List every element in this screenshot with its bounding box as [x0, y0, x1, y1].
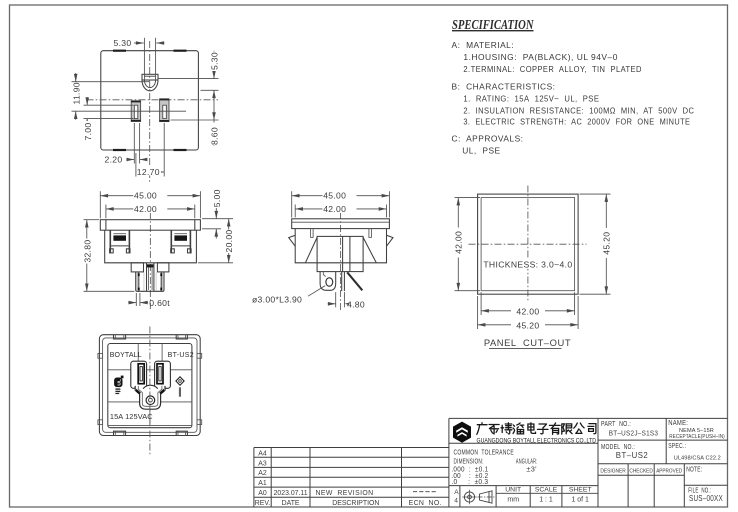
svg-text:DESCRIPTION: DESCRIPTION	[332, 500, 379, 507]
svg-text:2. INSULATION RESISTANCE: 1: 2. INSULATION RESISTANCE: 100MΩ MIN, AT …	[463, 106, 694, 116]
svg-text:2023.07.11: 2023.07.11	[274, 490, 308, 497]
svg-text:2.TERMINAL: COPPER ALLOY, T: 2.TERMINAL: COPPER ALLOY, TIN PLATED	[463, 64, 642, 74]
svg-text:CHECKED: CHECKED	[629, 468, 653, 474]
svg-text:DESIGNER: DESIGNER	[600, 468, 626, 474]
svg-text:7.00: 7.00	[83, 123, 93, 141]
svg-text:11.90: 11.90	[72, 82, 82, 104]
svg-text:BT–US2J–S1S3: BT–US2J–S1S3	[609, 428, 659, 437]
svg-text:THICKNESS: 3.0~4.0: THICKNESS: 3.0~4.0	[483, 259, 572, 269]
svg-text:MODEL NO.:: MODEL NO.:	[601, 444, 635, 451]
svg-text:C: APPROVALS:: C: APPROVALS:	[452, 134, 524, 144]
svg-text:A1: A1	[258, 480, 267, 487]
svg-text:32.80: 32.80	[82, 240, 92, 263]
svg-text:42.00: 42.00	[516, 306, 539, 316]
svg-text:4: 4	[454, 498, 458, 505]
svg-text:A4: A4	[258, 450, 267, 457]
svg-text:NEW REVISION: NEW REVISION	[316, 490, 374, 497]
svg-text:NEMA 5–15R: NEMA 5–15R	[679, 428, 714, 434]
svg-text:PART NO.:: PART NO.:	[601, 421, 631, 428]
svg-text:1 of 1: 1 of 1	[571, 496, 589, 503]
svg-text:UL: UL	[116, 379, 122, 386]
svg-text:GUANGDONG BOYTALL ELECTRONICS: GUANGDONG BOYTALL ELECTRONICS CO.,LTD	[477, 437, 597, 444]
svg-text:45.00: 45.00	[323, 191, 346, 201]
svg-text:SPECIFICATION: SPECIFICATION	[452, 18, 534, 33]
svg-text:A2: A2	[258, 470, 267, 477]
svg-text:BT–US2: BT–US2	[616, 451, 648, 460]
svg-text:5.00: 5.00	[212, 189, 222, 207]
svg-text:BT-US2: BT-US2	[168, 352, 194, 359]
svg-text:COMMON TOLERANCE: COMMON TOLERANCE	[454, 449, 515, 456]
svg-text:0.60t: 0.60t	[149, 298, 170, 308]
svg-text:A3: A3	[258, 460, 267, 467]
svg-text:SCALE: SCALE	[535, 487, 558, 494]
svg-text:SUS–00XX: SUS–00XX	[689, 494, 723, 503]
svg-text:1.HOUSING: PA(BLACK), UL 94V–: 1.HOUSING: PA(BLACK), UL 94V–0	[463, 52, 618, 62]
svg-text:REV.: REV.	[255, 500, 271, 507]
svg-text:A0: A0	[258, 490, 267, 497]
svg-text:mm: mm	[507, 496, 519, 503]
svg-text:RECEPTACLE(PUSH–IN): RECEPTACLE(PUSH–IN)	[669, 434, 725, 440]
svg-text:3. ELECTRIC STRENGTH: AC 2: 3. ELECTRIC STRENGTH: AC 2000V FOR ONE M…	[463, 117, 690, 127]
svg-text:45.00: 45.00	[134, 191, 157, 201]
svg-text:ECN NO.: ECN NO.	[409, 500, 442, 507]
svg-text:5.30: 5.30	[209, 52, 219, 70]
svg-text:UL, PSE: UL, PSE	[462, 146, 500, 156]
svg-text:A: A	[454, 489, 459, 496]
svg-text:8.60: 8.60	[210, 127, 220, 145]
svg-text:.0 : ±0.3: .0 : ±0.3	[451, 479, 488, 486]
svg-text:42.00: 42.00	[454, 231, 464, 254]
svg-text:DIMENSION:: DIMENSION:	[454, 459, 484, 466]
svg-text:BOYTALL: BOYTALL	[110, 352, 142, 359]
svg-text:5.30: 5.30	[114, 38, 132, 48]
svg-text:42.00: 42.00	[134, 204, 157, 214]
svg-text:UL498/CSA C22.2: UL498/CSA C22.2	[674, 456, 721, 462]
svg-text:B: CHARACTERISTICS:: B: CHARACTERISTICS:	[452, 81, 556, 91]
svg-text:NOTE:: NOTE:	[686, 466, 702, 473]
svg-text:1 : 1: 1 : 1	[539, 496, 553, 503]
svg-text:45.20: 45.20	[602, 232, 612, 255]
svg-text:12.70: 12.70	[137, 167, 160, 177]
svg-text:42.00: 42.00	[323, 204, 346, 214]
svg-text:A: MATERIAL:: A: MATERIAL:	[452, 40, 515, 50]
svg-text:±3': ±3'	[526, 466, 537, 473]
svg-text:15A 125VAC: 15A 125VAC	[110, 412, 153, 421]
svg-text:4.80: 4.80	[347, 300, 365, 310]
svg-text:20.00: 20.00	[224, 229, 234, 252]
svg-text:DATE: DATE	[282, 500, 300, 507]
svg-text:UNIT: UNIT	[505, 487, 521, 494]
svg-text:APPROVED: APPROVED	[656, 468, 682, 474]
svg-text:ANGULAR:: ANGULAR:	[516, 459, 538, 466]
svg-text:ø3.00*L3.90: ø3.00*L3.90	[252, 294, 302, 304]
svg-text:NAME:: NAME:	[668, 420, 688, 427]
svg-text:PANEL CUT–OUT: PANEL CUT–OUT	[484, 337, 571, 348]
svg-text:SHEET: SHEET	[569, 487, 592, 494]
svg-text:2.20: 2.20	[105, 155, 123, 165]
svg-text:SPEC.:: SPEC.:	[668, 443, 686, 450]
svg-text:1. RATING: 15A 125V~ UL,: 1. RATING: 15A 125V~ UL, PSE	[463, 93, 599, 103]
svg-text:45.20: 45.20	[516, 320, 539, 330]
